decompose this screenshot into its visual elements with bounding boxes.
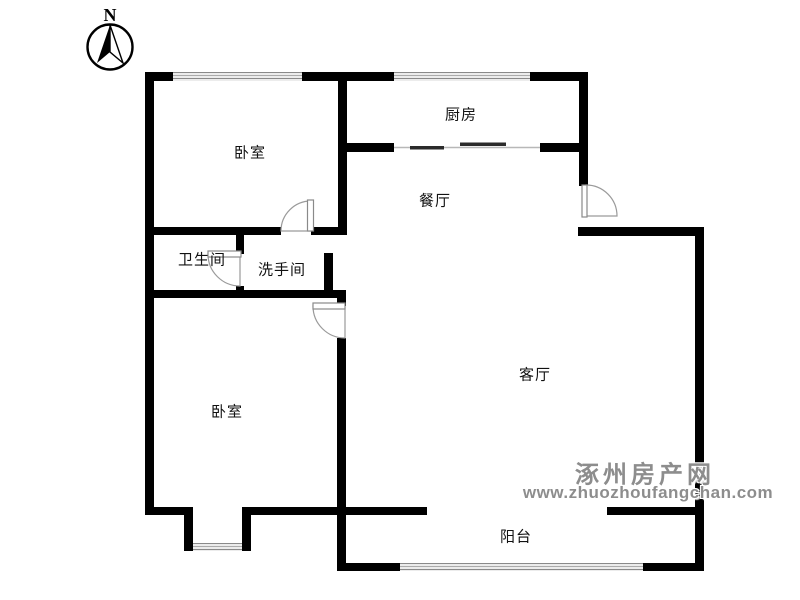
room-label-kitchen: 厨房 (445, 104, 477, 125)
room-label-living: 客厅 (519, 364, 551, 385)
room-label-washroom: 洗手间 (258, 259, 306, 280)
door-swing (313, 303, 345, 338)
door-swing (582, 185, 617, 217)
room-label-dining: 餐厅 (419, 190, 451, 211)
room-label-bedroom-top: 卧室 (234, 142, 266, 163)
door-layer: N (0, 0, 800, 600)
north-label: N (104, 5, 117, 25)
room-label-bathroom: 卫生间 (178, 249, 226, 270)
room-label-bedroom-bottom: 卧室 (211, 401, 243, 422)
floor-plan: N 卧室 厨房 餐厅 卫生间 洗手间 客厅 卧室 阳台 涿州房产网 www.zh… (0, 0, 800, 600)
compass-icon: N (88, 5, 133, 70)
door-swing (281, 200, 314, 231)
room-label-balcony: 阳台 (500, 526, 532, 547)
watermark-site-url: www.zhuozhoufangchan.com (523, 483, 773, 503)
sliding-door (394, 143, 540, 150)
